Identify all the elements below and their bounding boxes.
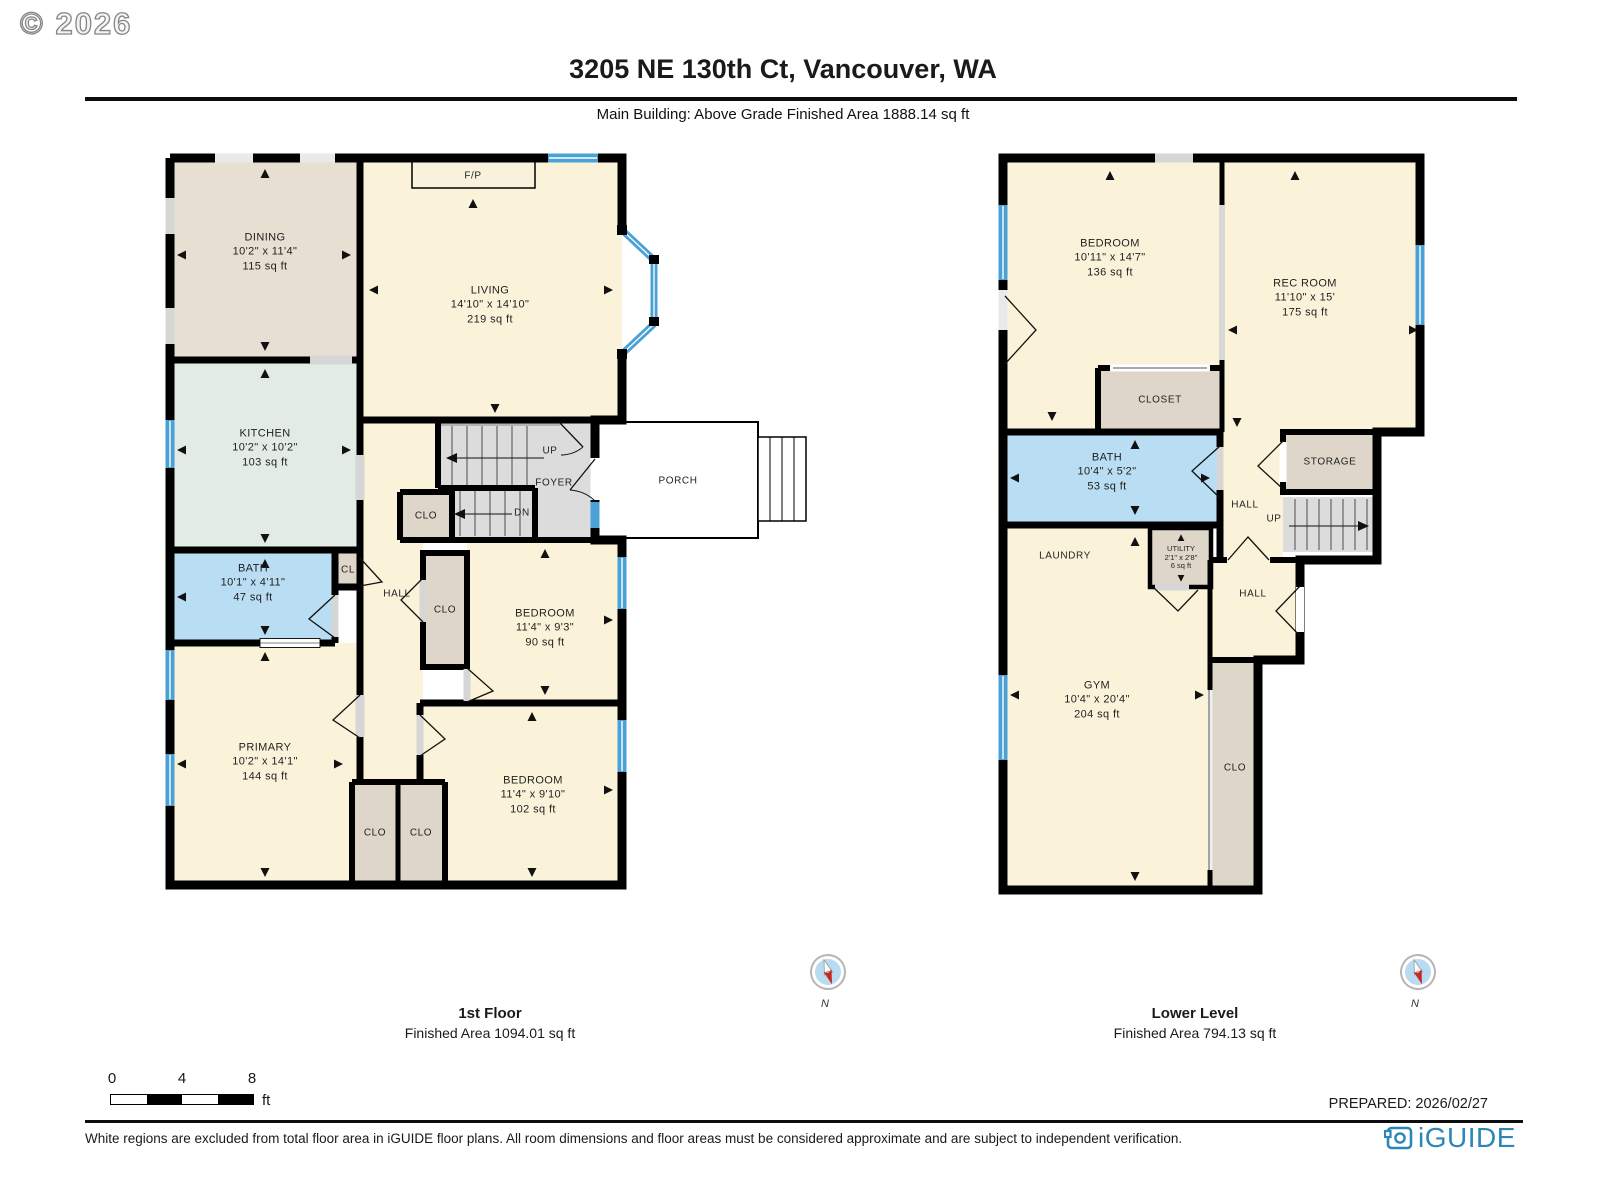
room-label-bath: BATH 10'1" x 4'11" 47 sq ft (221, 562, 286, 605)
floorplan-lower-level-drawing (995, 150, 1445, 895)
room-label-bedroom1: BEDROOM 11'4" x 9'3" 90 sq ft (515, 607, 575, 650)
room-name: BEDROOM (501, 774, 566, 788)
label-closet: CLOSET (1138, 394, 1182, 407)
scalebar-tick-8: 8 (248, 1070, 256, 1087)
label-closet-entry: CLO (415, 510, 437, 523)
scalebar-unit: ft (262, 1092, 270, 1109)
iguide-logo: iGUIDE (1384, 1122, 1516, 1154)
label-stairs-up: UP (542, 445, 557, 458)
room-label-recroom: REC ROOM 11'10" x 15' 175 sq ft (1273, 277, 1337, 320)
scalebar-tick-4: 4 (178, 1070, 186, 1087)
floorplan-lower-level: BEDROOM 10'11" x 14'7" 136 sq ft REC ROO… (995, 150, 1445, 895)
room-area: 219 sq ft (451, 312, 530, 326)
room-dims: 11'10" x 15' (1273, 291, 1337, 305)
bay-window (617, 225, 659, 359)
room-dims: 10'11" x 14'7" (1074, 251, 1145, 265)
room-dims: 10'2" x 14'1" (232, 755, 298, 769)
label-hall-lower: HALL (1239, 588, 1266, 601)
room-dims: 11'4" x 9'10" (501, 788, 566, 802)
label-stairs-dn: DN (514, 507, 530, 520)
room-dims: 10'2" x 11'4" (233, 245, 298, 259)
room-area: 47 sq ft (221, 590, 286, 604)
room-dims: 10'4" x 5'2" (1077, 465, 1136, 479)
room-name: BEDROOM (1074, 237, 1145, 251)
label-closet-hall: CLO (434, 604, 456, 617)
label-foyer: FOYER (535, 477, 572, 490)
room-dims: 10'2" x 10'2" (232, 441, 298, 455)
room-name: BATH (221, 562, 286, 576)
label-closet-bedroom: CLO (410, 827, 432, 840)
page-subtitle: Main Building: Above Grade Finished Area… (0, 106, 1566, 123)
room-name: BEDROOM (515, 607, 575, 621)
floor-title: 1st Floor (160, 1005, 820, 1022)
floor-area: Finished Area 794.13 sq ft (970, 1025, 1420, 1041)
prepared-date: PREPARED: 2026/02/27 (1240, 1096, 1488, 1112)
scalebar-segment (111, 1095, 147, 1104)
room-label-dining: DINING 10'2" x 11'4" 115 sq ft (233, 231, 298, 274)
room-label-primary: PRIMARY 10'2" x 14'1" 144 sq ft (232, 741, 298, 784)
room-area: 6 sq ft (1165, 562, 1198, 571)
room-name: PRIMARY (232, 741, 298, 755)
room-label-bath: BATH 10'4" x 5'2" 53 sq ft (1077, 451, 1136, 494)
scalebar (110, 1094, 254, 1105)
room-dims: 10'4" x 20'4" (1064, 693, 1130, 707)
label-laundry: LAUNDRY (1039, 550, 1091, 563)
porch-outline (598, 422, 806, 538)
room-label-gym: GYM 10'4" x 20'4" 204 sq ft (1064, 679, 1130, 722)
room-name: DINING (233, 231, 298, 245)
compass-north-label: N (821, 998, 829, 1010)
room-label-kitchen: KITCHEN 10'2" x 10'2" 103 sq ft (232, 427, 298, 470)
room-name: KITCHEN (232, 427, 298, 441)
iguide-logo-icon (1384, 1124, 1414, 1152)
room-label-utility: UTILITY 2'1" x 2'8" 6 sq ft (1165, 545, 1198, 571)
room-area: 90 sq ft (515, 635, 575, 649)
header-divider (85, 97, 1517, 101)
label-storage: STORAGE (1304, 456, 1357, 469)
iguide-logo-text: iGUIDE (1418, 1122, 1516, 1154)
room-area: 103 sq ft (232, 455, 298, 469)
scalebar-segment (147, 1095, 183, 1104)
room-name: REC ROOM (1273, 277, 1337, 291)
footer-disclaimer: White regions are excluded from total fl… (85, 1131, 1385, 1146)
room-dims: 10'1" x 4'11" (221, 576, 286, 590)
room-label-bedroom: BEDROOM 10'11" x 14'7" 136 sq ft (1074, 237, 1145, 280)
floor-area: Finished Area 1094.01 sq ft (160, 1025, 820, 1041)
floorplan-1st-floor: DINING 10'2" x 11'4" 115 sq ft KITCHEN 1… (160, 150, 820, 895)
copyright-watermark: © 2026 (20, 6, 132, 42)
caption-lower-level: Lower Level Finished Area 794.13 sq ft (970, 1005, 1420, 1041)
room-name: GYM (1064, 679, 1130, 693)
room-label-living: LIVING 14'10" x 14'10" 219 sq ft (451, 284, 530, 327)
room-area: 144 sq ft (232, 769, 298, 783)
label-closet-cl: CL (341, 564, 355, 577)
footer-divider (85, 1120, 1523, 1123)
room-dims: 14'10" x 14'10" (451, 298, 530, 312)
room-name: LIVING (451, 284, 530, 298)
caption-1st-floor: 1st Floor Finished Area 1094.01 sq ft (160, 1005, 820, 1041)
label-hall: HALL (383, 588, 410, 601)
scalebar-tick-0: 0 (108, 1070, 116, 1087)
scalebar-segment (182, 1095, 218, 1104)
label-porch: PORCH (658, 475, 697, 488)
room-area: 136 sq ft (1074, 265, 1145, 279)
room-area: 175 sq ft (1273, 305, 1337, 319)
scalebar-segment (218, 1095, 254, 1104)
label-stairs-up: UP (1266, 513, 1281, 526)
room-area: 115 sq ft (233, 259, 298, 273)
room-label-bedroom2: BEDROOM 11'4" x 9'10" 102 sq ft (501, 774, 566, 817)
label-closet-primary: CLO (364, 827, 386, 840)
room-dims: 11'4" x 9'3" (515, 621, 575, 635)
label-closet-gym: CLO (1224, 762, 1246, 775)
page-title: 3205 NE 130th Ct, Vancouver, WA (0, 54, 1566, 85)
room-area: 53 sq ft (1077, 479, 1136, 493)
room-name: BATH (1077, 451, 1136, 465)
floor-title: Lower Level (970, 1005, 1420, 1022)
label-hall-upper: HALL (1231, 499, 1258, 512)
room-area: 204 sq ft (1064, 707, 1130, 721)
label-fireplace: F/P (464, 170, 481, 183)
room-area: 102 sq ft (501, 802, 566, 816)
